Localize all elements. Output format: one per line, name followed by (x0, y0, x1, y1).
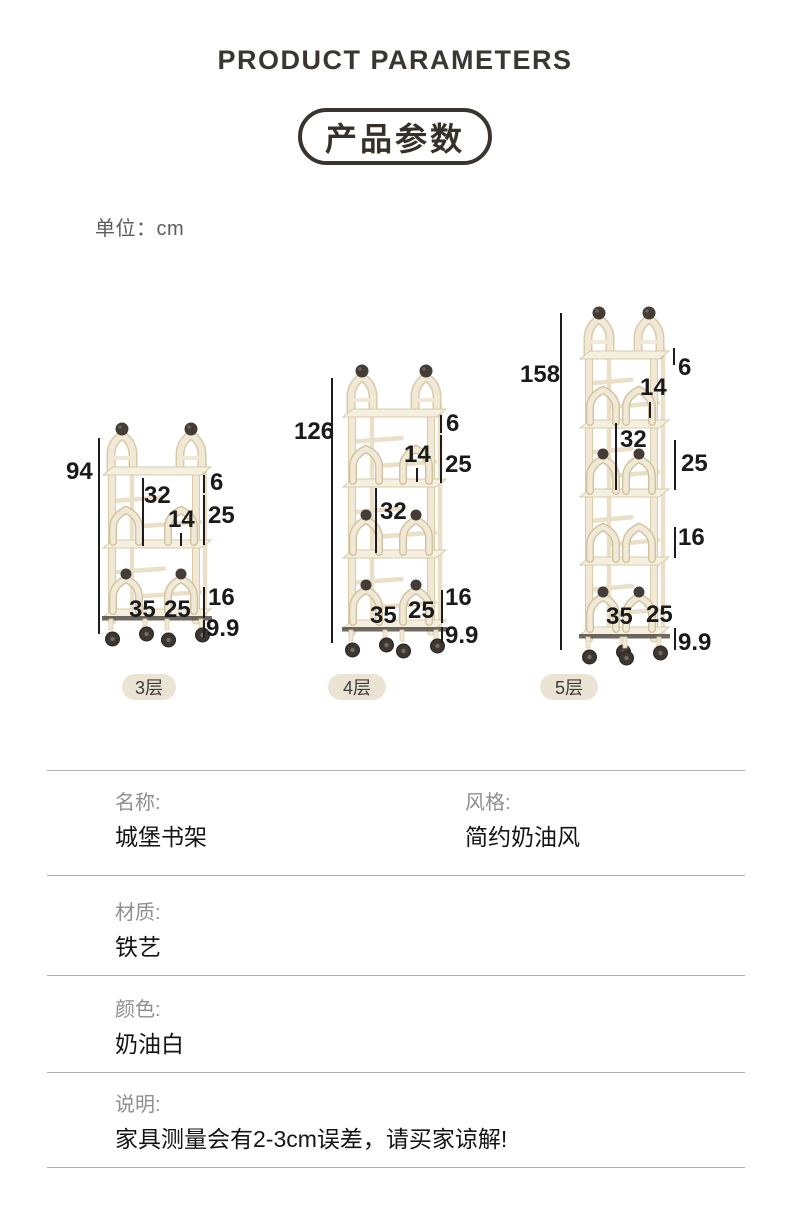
spec-label: 风格: (465, 792, 580, 815)
dim-label-total: 94 (66, 460, 93, 484)
spec-label: 颜色: (115, 999, 184, 1022)
spec-name: 名称: 城堡书架 (115, 792, 207, 852)
spec-table: 名称: 城堡书架 风格: 简约奶油风 材质: 铁艺 颜色: 奶油白 说明: 家具… (47, 770, 745, 1170)
spec-material: 材质: 铁艺 (115, 902, 161, 962)
tier-badge-4-label: 4层 (343, 674, 371, 700)
dim-label-top-lip: 6 (446, 412, 459, 436)
spec-color: 颜色: 奶油白 (115, 999, 184, 1059)
dim-label-wheel: 9.9 (206, 617, 239, 641)
dim-label-depth: 35 (370, 604, 397, 628)
dim-label-total: 158 (520, 363, 560, 387)
dimension-line-upper-gap (440, 435, 442, 483)
dim-label-arch: 14 (640, 376, 667, 400)
shelf-diagram-3-tier: 94 32 6 25 14 16 9.9 35 25 (58, 412, 283, 672)
dimension-line-arch (416, 468, 418, 482)
dim-label-arch: 14 (168, 508, 195, 532)
dim-label-total: 126 (294, 420, 334, 444)
dim-label-wheel: 9.9 (678, 631, 711, 655)
dim-label-width: 25 (646, 603, 673, 627)
dimension-line-arch (649, 402, 651, 418)
tier-badge-5-label: 5层 (555, 674, 583, 700)
dim-label-upper-gap: 25 (445, 453, 472, 477)
dim-label-depth: 35 (606, 605, 633, 629)
dim-label-depth: 35 (129, 598, 156, 622)
dim-label-top-lip: 6 (678, 356, 691, 380)
shelf-diagram-4-tier: 126 6 25 14 32 16 9.9 35 25 (288, 352, 518, 672)
dim-label-lower-gap: 16 (445, 586, 472, 610)
dim-label-tier-gap: 32 (380, 500, 407, 524)
spec-style: 风格: 简约奶油风 (465, 792, 580, 852)
spec-row-note: 说明: 家具测量会有2-3cm误差，请买家谅解! (47, 1072, 745, 1167)
dimension-line-arch (180, 533, 182, 546)
spec-label: 名称: (115, 792, 207, 815)
dimension-line-upper-gap (674, 440, 676, 490)
dim-label-width: 25 (164, 598, 191, 622)
dimension-line-tier-gap (615, 423, 617, 490)
spec-value: 简约奶油风 (465, 824, 580, 852)
dimension-line-total (560, 313, 562, 650)
spec-label: 材质: (115, 902, 161, 925)
spec-note: 说明: 家具测量会有2-3cm误差，请买家谅解! (115, 1094, 507, 1154)
divider (47, 1167, 745, 1168)
dimension-line-top-lip (673, 348, 675, 365)
dimension-line-lower-gap (203, 587, 205, 618)
dimension-line-lower-gap (441, 590, 443, 623)
dimension-line-top-lip (203, 475, 205, 493)
spec-row-name-style: 名称: 城堡书架 风格: 简约奶油风 (47, 770, 745, 875)
dim-label-top-lip: 6 (210, 471, 223, 495)
dimension-line-wheel (674, 628, 676, 650)
tier-badge-4: 4层 (328, 674, 386, 700)
tier-badge-5: 5层 (540, 674, 598, 700)
dim-label-upper-gap: 25 (681, 452, 708, 476)
dim-label-wheel: 9.9 (445, 624, 478, 648)
unit-note: 单位：cm (95, 212, 184, 241)
dimension-line-top-lip (440, 415, 442, 433)
dim-label-tier-gap: 32 (144, 484, 171, 508)
dimension-line-lower-gap (674, 527, 676, 558)
dim-label-tier-gap: 32 (620, 428, 647, 452)
shelf-diagram-5-tier: 158 6 14 32 25 16 9.9 35 25 (518, 292, 773, 672)
dimension-line-tier-gap (375, 488, 377, 553)
dimension-line-wheel (203, 620, 205, 638)
section-title-pill: 产品参数 (298, 108, 492, 165)
spec-label: 说明: (115, 1094, 507, 1117)
tier-badge-3: 3层 (122, 674, 176, 700)
bookshelf-illustration-3-tier (58, 412, 283, 672)
section-title-en: PRODUCT PARAMETERS (0, 45, 790, 76)
dimension-line-upper-gap (203, 495, 205, 545)
section-title-zh: 产品参数 (325, 114, 465, 160)
spec-row-material: 材质: 铁艺 (47, 875, 745, 975)
spec-value: 城堡书架 (115, 824, 207, 852)
dim-label-upper-gap: 25 (208, 504, 235, 528)
dim-label-width: 25 (408, 599, 435, 623)
dim-label-lower-gap: 16 (678, 526, 705, 550)
spec-value: 奶油白 (115, 1031, 184, 1059)
spec-row-color: 颜色: 奶油白 (47, 975, 745, 1072)
dimension-line-total (98, 438, 100, 634)
dimension-line-wheel (441, 627, 443, 643)
spec-value: 铁艺 (115, 934, 161, 962)
dim-label-lower-gap: 16 (208, 586, 235, 610)
dim-label-arch: 14 (404, 443, 431, 467)
spec-value: 家具测量会有2-3cm误差，请买家谅解! (115, 1126, 507, 1154)
tier-badge-3-label: 3层 (135, 674, 163, 700)
